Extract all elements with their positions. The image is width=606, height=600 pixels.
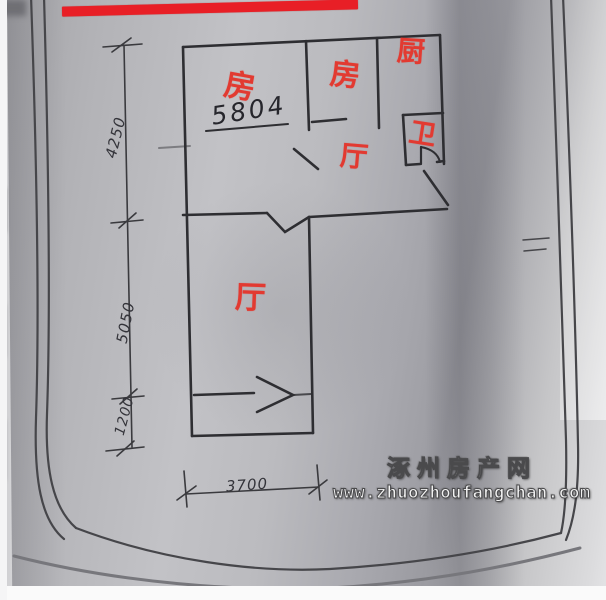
room-label-kitchen: 厨 <box>396 37 426 67</box>
watermark-site-name: 涿州房产网 <box>387 458 537 481</box>
floor-plan-photo: 房 房 厨 卫 厅 厅 5804 4250 5050 1200 3700 涿州房… <box>0 0 606 600</box>
watermark-site-url: www.zhuozhoufangchan.com <box>333 485 591 502</box>
photo-bottom-margin <box>0 586 606 600</box>
paper-sheet <box>7 0 606 592</box>
room-label-hall-upper: 厅 <box>339 142 369 172</box>
photo-left-margin <box>0 0 7 600</box>
room-label-bedroom-2: 房 <box>329 60 362 93</box>
dim-bottom: 3700 <box>226 477 269 495</box>
room-label-bathroom: 卫 <box>407 119 438 150</box>
room-label-hall-lower: 厅 <box>234 282 266 314</box>
